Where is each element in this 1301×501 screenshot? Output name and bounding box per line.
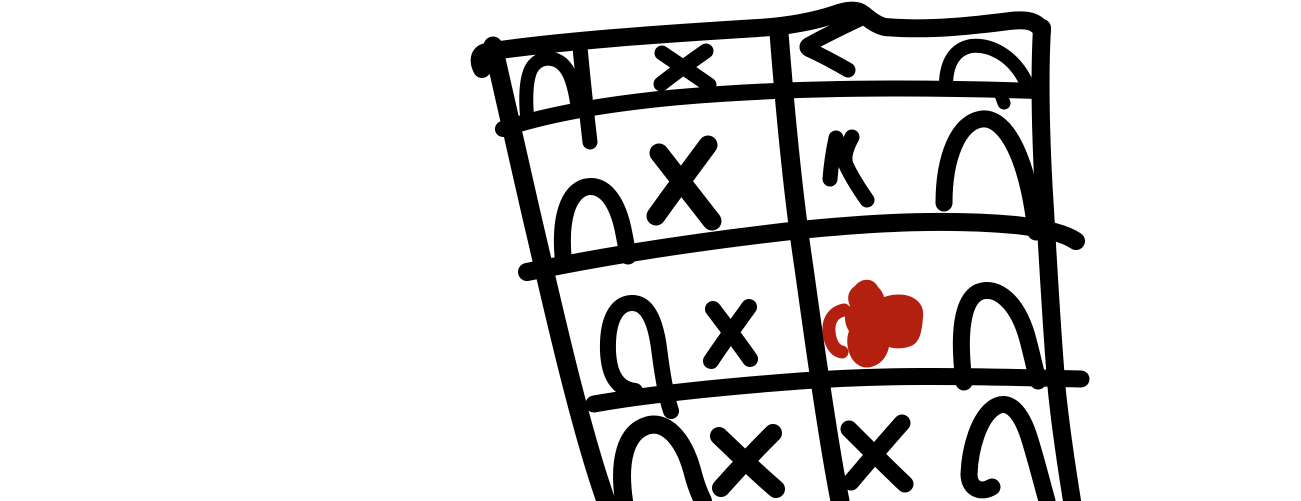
- r4c1-arch: [622, 425, 703, 501]
- grid-middle-divider: [779, 33, 840, 501]
- doodle-page: [0, 0, 1301, 501]
- grid-right-edge: [1041, 28, 1072, 501]
- r2c1-arch: [562, 186, 628, 256]
- red-scribble-tail: [829, 310, 844, 352]
- red-scribble-body: [845, 280, 923, 368]
- r2c2-bent-mark-stroke-2: [845, 137, 867, 200]
- r1c2-arch: [946, 46, 1025, 82]
- r4c2-arch: [969, 404, 1047, 501]
- r1c2-nub: [1001, 95, 1004, 103]
- r2c2-bent-mark-stroke-1: [830, 138, 836, 179]
- drawing-canvas: [0, 0, 1301, 501]
- ink-strokes: [480, 11, 1081, 501]
